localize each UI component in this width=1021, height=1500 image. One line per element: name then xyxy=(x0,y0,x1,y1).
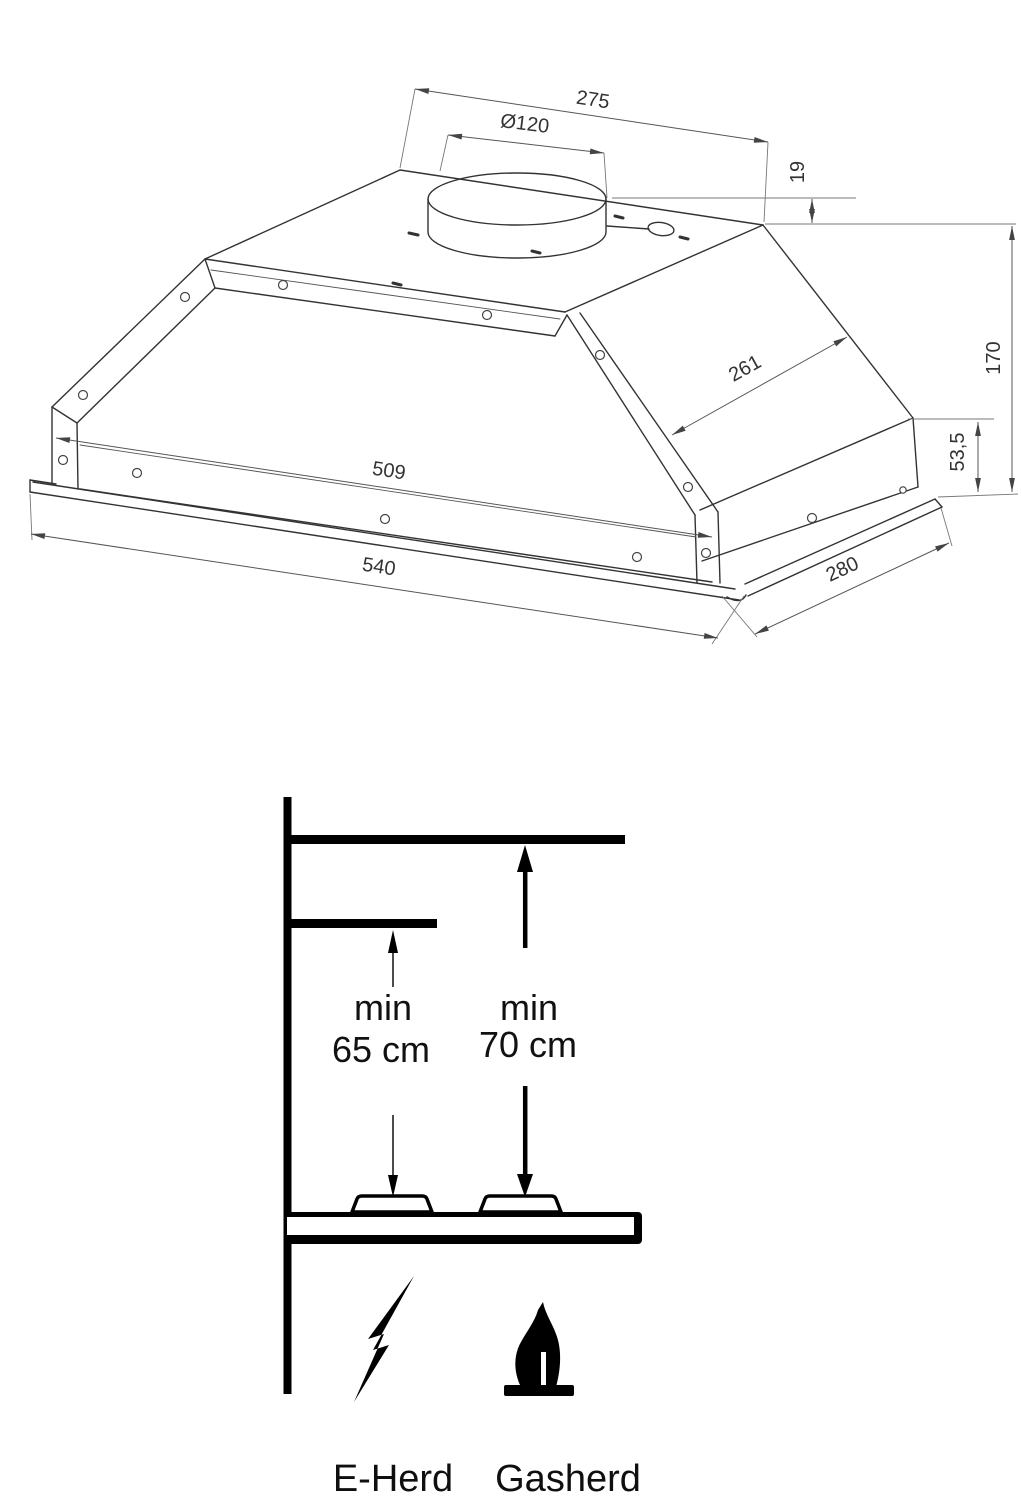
dim-label-540: 540 xyxy=(361,554,397,581)
cooktop xyxy=(287,1196,642,1244)
electric-min-label: min xyxy=(354,987,412,1028)
dim-label-19: 19 xyxy=(787,161,809,183)
lightning-icon xyxy=(354,1276,414,1402)
dimensions: 275 Ø120 19 170 53 xyxy=(30,87,1018,644)
page: 275 Ø120 19 170 53 xyxy=(0,0,1021,1500)
dim-label-duct: Ø120 xyxy=(499,110,550,138)
dim-label-280: 280 xyxy=(823,553,863,587)
dim-label-509: 509 xyxy=(371,458,407,485)
dim-duct-diameter: Ø120 xyxy=(440,110,607,198)
dim-label-275: 275 xyxy=(575,87,611,114)
burner-plate-right xyxy=(480,1196,561,1212)
panel-slots xyxy=(393,216,688,285)
electric-appliance-label: E-Herd xyxy=(333,1458,453,1500)
installation-diagram: min 65 cm min 70 cm E-Herd Gasherd xyxy=(284,797,643,1500)
gas-appliance-label: Gasherd xyxy=(495,1458,641,1500)
wall-line xyxy=(284,797,292,1394)
cable-eyelet xyxy=(607,221,675,237)
hood-bottom-line-electric xyxy=(287,919,437,928)
dim-top-width: 275 xyxy=(400,87,768,222)
gas-min-label: min xyxy=(500,987,558,1028)
dim-collar-height: 19 xyxy=(612,161,1016,224)
dim-label-261: 261 xyxy=(725,351,765,386)
burner-plate-left xyxy=(352,1196,432,1212)
gas-distance: 70 cm xyxy=(479,1024,577,1065)
dim-body-height: 53,5 xyxy=(908,419,994,492)
screw-holes xyxy=(59,281,907,562)
technical-sheet: 275 Ø120 19 170 53 xyxy=(0,0,1021,1500)
duct-spigot xyxy=(393,173,688,285)
hood-body xyxy=(30,170,942,601)
hood-bottom-line-gas xyxy=(287,835,625,844)
dim-outer-depth: 280 xyxy=(722,508,952,637)
electric-distance: 65 cm xyxy=(332,1029,430,1070)
dim-label-53-5: 53,5 xyxy=(947,433,969,472)
dim-label-170: 170 xyxy=(983,341,1005,374)
hood-drawing: 275 Ø120 19 170 53 xyxy=(30,87,1018,644)
dim-slope-depth: 261 xyxy=(672,337,847,435)
flame-icon xyxy=(504,1302,574,1396)
